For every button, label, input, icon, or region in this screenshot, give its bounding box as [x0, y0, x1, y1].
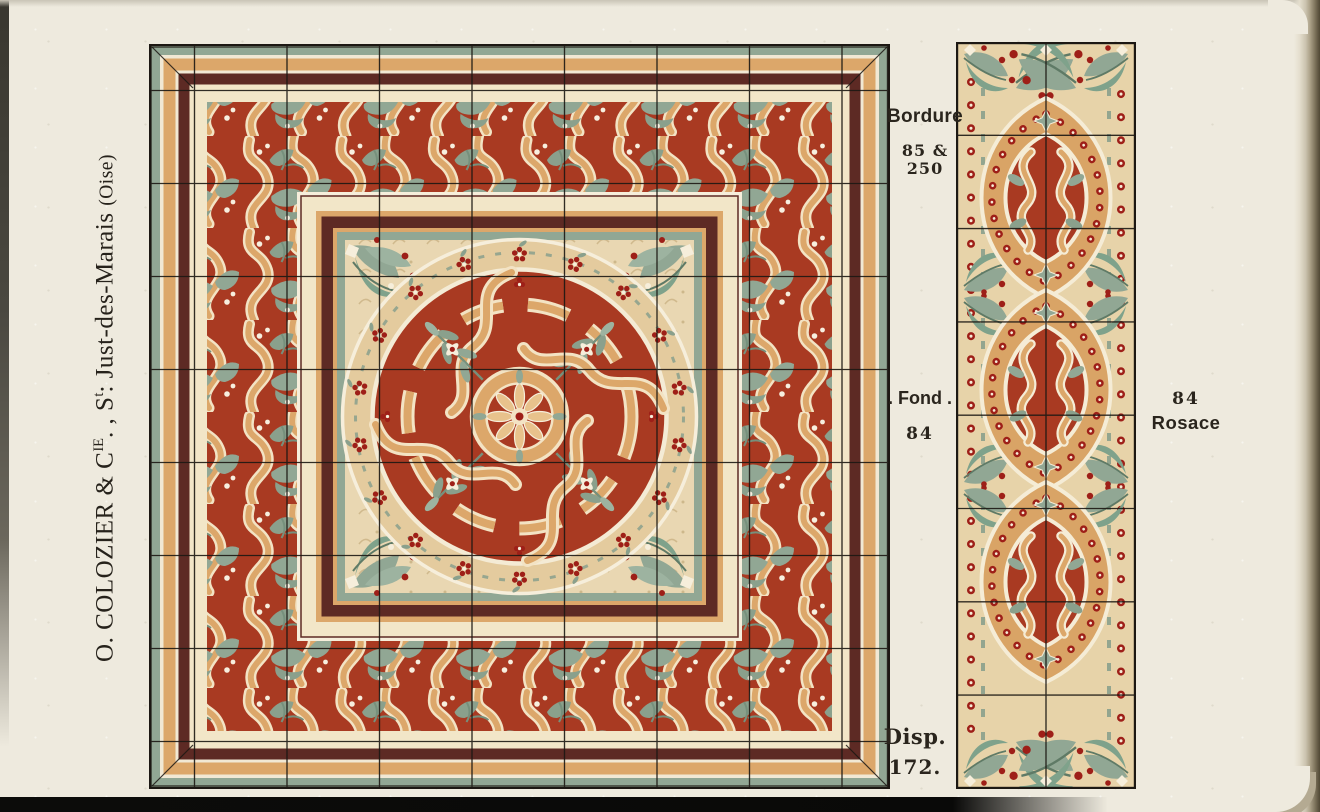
page-top-edge	[0, 0, 1320, 7]
center-rosette	[472, 369, 568, 465]
carpet-tile-panel	[149, 44, 890, 789]
catalog-page: O. COLOZIER & CIE. , St: Just-des-Marais…	[0, 0, 1320, 812]
page-left-shadow	[0, 0, 9, 770]
rosace-title: Rosace	[1142, 413, 1230, 434]
center-medallion	[343, 239, 697, 593]
publisher-imprint: O. COLOZIER & CIE. , St: Just-des-Marais…	[91, 94, 125, 722]
fond-ref: 84	[884, 425, 956, 444]
book-edge-right	[1294, 0, 1320, 812]
publisher-name: O. COLOZIER & C	[91, 452, 118, 662]
border-strip-panel	[956, 42, 1136, 789]
label-bordure: Bordure 85 & 250	[882, 106, 968, 178]
label-rosace: 84 Rosace	[1142, 390, 1230, 434]
bordure-title: Bordure	[882, 106, 968, 127]
fond-title: . Fond .	[884, 388, 956, 408]
rosace-ref: 84	[1142, 390, 1230, 409]
publisher-department: (Oise)	[96, 154, 117, 206]
disp-ref: 172.	[876, 756, 954, 778]
bordure-ref: 85 & 250	[882, 142, 968, 178]
scan-bottom-bar	[0, 797, 1108, 812]
carpet-panel-art	[149, 44, 890, 789]
label-fond: . Fond . 84	[884, 388, 956, 444]
disp-title: Disp.	[876, 725, 954, 749]
label-disp: Disp. 172.	[876, 725, 954, 778]
border-strip-art	[956, 42, 1136, 789]
